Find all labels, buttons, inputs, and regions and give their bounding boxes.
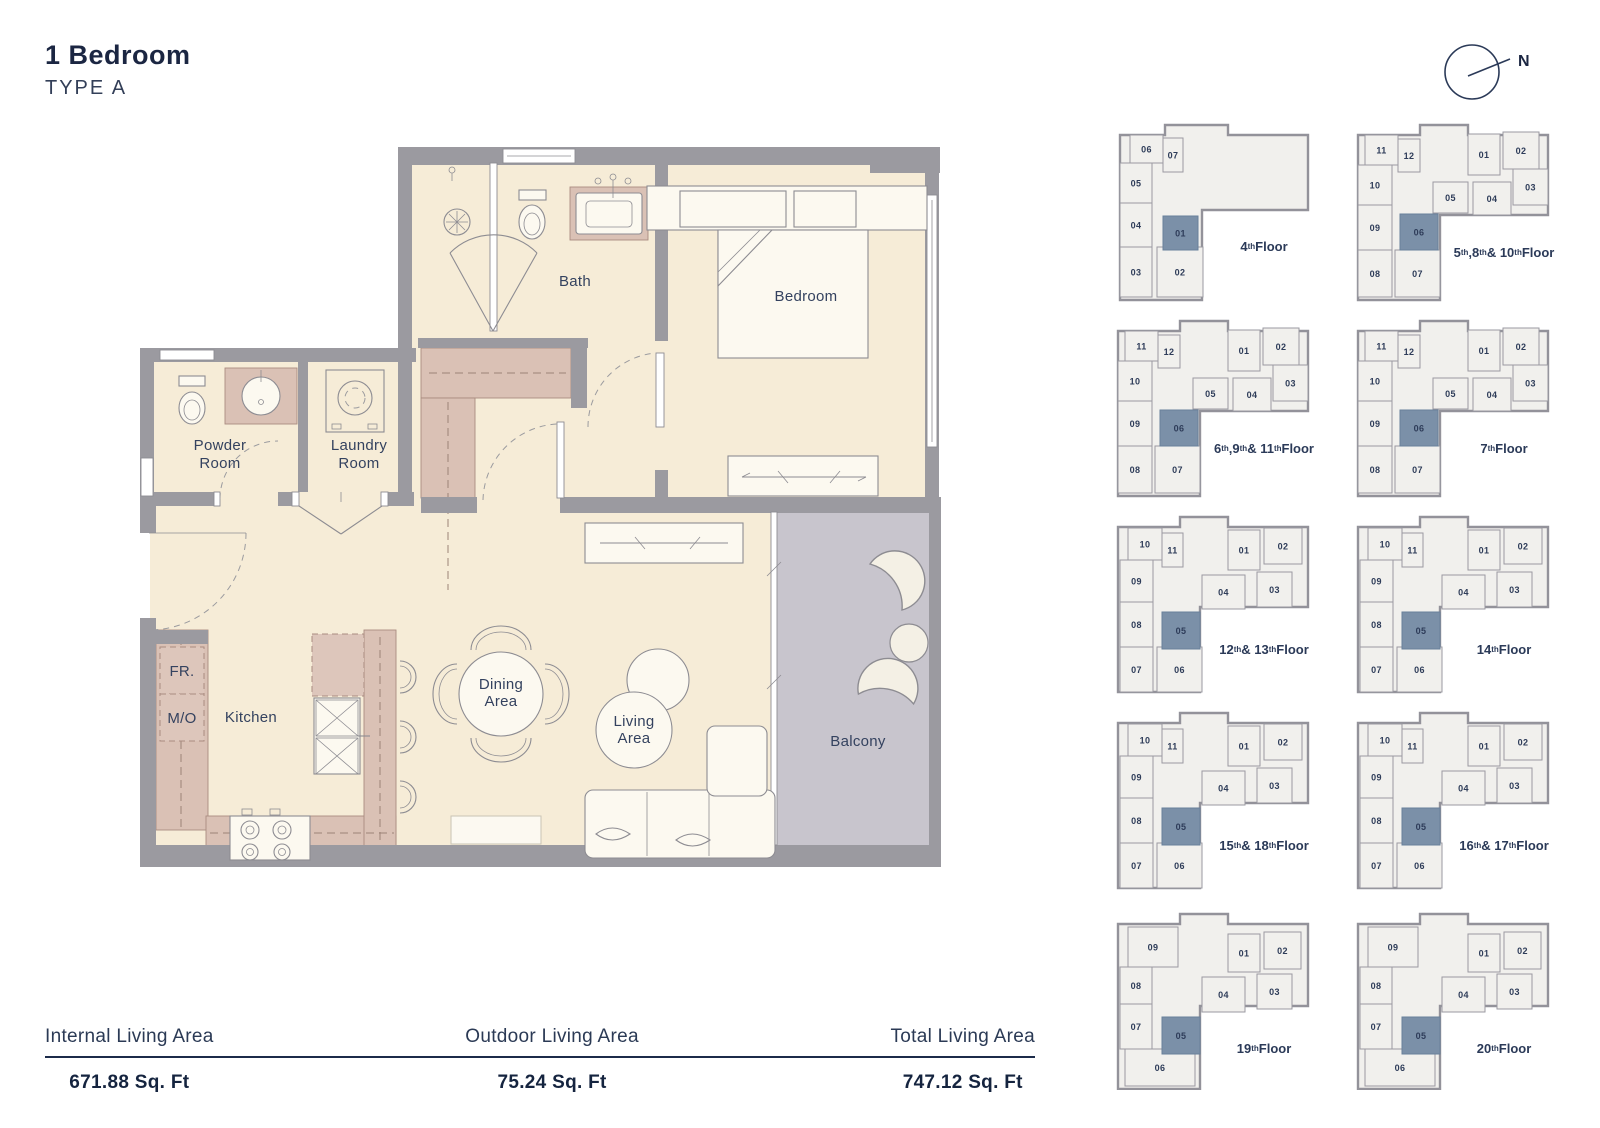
unit-number: 06 <box>1414 228 1425 238</box>
unit-number: 02 <box>1518 738 1529 748</box>
unit-number: 06 <box>1414 665 1425 675</box>
unit-number: 02 <box>1276 342 1287 352</box>
unit-number: 07 <box>1371 1022 1382 1032</box>
sofa-icon <box>585 790 775 858</box>
unit-number: 07 <box>1412 269 1423 279</box>
room-label-bedroom: Bedroom <box>775 288 838 305</box>
stat-label: Internal Living Area <box>45 1026 214 1048</box>
unit-number: 02 <box>1516 342 1527 352</box>
unit-number: 06 <box>1174 861 1185 871</box>
north-compass-icon: N <box>1438 28 1568 123</box>
unit-number: 01 <box>1239 346 1250 356</box>
unit-number: 11 <box>1407 546 1417 556</box>
powder-basin-icon <box>242 377 280 415</box>
unit-number: 05 <box>1176 822 1187 832</box>
unit-number: 02 <box>1278 542 1289 552</box>
unit-number: 03 <box>1285 379 1296 389</box>
unit-number: 09 <box>1148 943 1159 953</box>
unit-number: 10 <box>1140 540 1151 550</box>
unit-number: 03 <box>1509 585 1520 595</box>
unit-number: 02 <box>1175 268 1186 278</box>
unit-number: 03 <box>1269 781 1280 791</box>
unit-number: 09 <box>1131 577 1142 587</box>
unit-number: 08 <box>1371 816 1382 826</box>
unit-number: 03 <box>1509 781 1520 791</box>
unit-number: 09 <box>1130 419 1141 429</box>
unit-number: 02 <box>1516 146 1527 156</box>
unit-number: 09 <box>1388 943 1399 953</box>
unit-number: 11 <box>1376 146 1386 156</box>
keyplan-map: 111210090807060504010203 <box>1080 306 1320 502</box>
unit-number: 08 <box>1371 620 1382 630</box>
keyplan-grid: 060705040302014th Floor11121009080706050… <box>1080 110 1560 1090</box>
unit-number: 06 <box>1174 665 1185 675</box>
svg-text:Room: Room <box>199 455 240 472</box>
unit-number: 10 <box>1380 540 1391 550</box>
unit-number: 05 <box>1176 626 1187 636</box>
floorplan: Bath Bedroom Powder Room Laundry Room Ki… <box>130 140 950 885</box>
room-label-laundry: Laundry <box>331 437 388 454</box>
keyplan-9: 09080706050403010219th Floor <box>1080 894 1320 1090</box>
keyplan-floor-label: 14th Floor <box>1446 628 1562 672</box>
unit-number: 08 <box>1370 269 1381 279</box>
unit-number: 04 <box>1131 221 1142 231</box>
svg-text:Area: Area <box>485 693 518 710</box>
stat-value: 747.12 Sq. Ft <box>903 1072 1023 1094</box>
unit-number: 06 <box>1141 145 1152 155</box>
keyplan-5: 101109080706050403010212th & 13th Floor <box>1080 502 1320 698</box>
rug <box>451 816 541 844</box>
unit-number: 08 <box>1131 620 1142 630</box>
unit-number: 04 <box>1218 588 1229 598</box>
unit-number: 10 <box>1140 736 1151 746</box>
room-label-balcony: Balcony <box>830 733 886 750</box>
keyplan-map: 111210090807060504010203 <box>1320 110 1560 306</box>
room-label-living: Living <box>614 713 655 730</box>
unit-number: 06 <box>1414 861 1425 871</box>
unit-number: 03 <box>1131 268 1142 278</box>
unit-number: 01 <box>1239 546 1250 556</box>
unit-number: 05 <box>1445 389 1456 399</box>
stats-divider <box>45 1056 1035 1058</box>
unit-number: 01 <box>1479 150 1490 160</box>
balcony-table-icon <box>890 624 928 662</box>
unit-number: 08 <box>1130 465 1141 475</box>
unit-number: 09 <box>1131 773 1142 783</box>
unit-number: 05 <box>1131 179 1142 189</box>
unit-number: 11 <box>1167 546 1177 556</box>
keyplan-4: 1112100908070605040102037th Floor <box>1320 306 1560 502</box>
unit-number: 04 <box>1218 990 1229 1000</box>
unit-number: 09 <box>1370 419 1381 429</box>
unit-number: 10 <box>1370 181 1381 191</box>
unit-number: 03 <box>1509 987 1520 997</box>
unit-number: 08 <box>1371 981 1382 991</box>
unit-number: 04 <box>1487 194 1498 204</box>
keyplan-7: 101109080706050403010215th & 18th Floor <box>1080 698 1320 894</box>
room-label-powder: Powder <box>194 437 247 454</box>
room-label-bath: Bath <box>559 273 591 290</box>
keyplan-map: 111210090807060504010203 <box>1320 306 1560 502</box>
stat-total: Total Living Area 747.12 Sq. Ft <box>890 1026 1035 1094</box>
area-stats: Internal Living Area 671.88 Sq. Ft Outdo… <box>45 1026 1035 1094</box>
keyplan-floor-label: 4th Floor <box>1206 225 1322 269</box>
room-label-kitchen: Kitchen <box>225 709 277 726</box>
svg-text:Area: Area <box>618 730 651 747</box>
unit-number: 06 <box>1414 424 1425 434</box>
unit-number: 08 <box>1370 465 1381 475</box>
bath-door <box>656 353 664 427</box>
unit-number: 11 <box>1136 342 1146 352</box>
unit-number: 02 <box>1518 542 1529 552</box>
unit-number: 12 <box>1404 347 1415 357</box>
room-label-fr: FR. <box>169 663 194 680</box>
unit-number: 01 <box>1239 742 1250 752</box>
keyplan-map: 06070504030201 <box>1080 110 1320 306</box>
unit-number: 04 <box>1458 784 1469 794</box>
unit-number: 12 <box>1404 151 1415 161</box>
page-title: 1 Bedroom <box>45 40 191 71</box>
unit-number: 05 <box>1416 1031 1427 1041</box>
stat-label: Outdoor Living Area <box>465 1026 639 1048</box>
toilet-icon <box>519 190 546 200</box>
unit-number: 03 <box>1269 987 1280 997</box>
stat-outdoor: Outdoor Living Area 75.24 Sq. Ft <box>465 1026 639 1094</box>
chaise <box>707 726 767 796</box>
bedroom-door <box>557 422 564 498</box>
svg-text:Room: Room <box>338 455 379 472</box>
compass-north-label: N <box>1518 53 1530 70</box>
unit-number: 01 <box>1479 546 1490 556</box>
unit-number: 07 <box>1131 861 1142 871</box>
keyplan-1: 060705040302014th Floor <box>1080 110 1320 306</box>
unit-number: 11 <box>1407 742 1417 752</box>
unit-number: 07 <box>1131 665 1142 675</box>
unit-number: 04 <box>1458 990 1469 1000</box>
unit-number: 07 <box>1168 151 1179 161</box>
unit-number: 01 <box>1479 742 1490 752</box>
unit-number: 09 <box>1370 223 1381 233</box>
unit-number: 07 <box>1131 1022 1142 1032</box>
room-label-dining: Dining <box>479 676 523 693</box>
unit-number: 04 <box>1218 784 1229 794</box>
unit-number: 03 <box>1269 585 1280 595</box>
unit-number: 09 <box>1371 577 1382 587</box>
stat-value: 75.24 Sq. Ft <box>497 1072 606 1094</box>
unit-number: 04 <box>1458 588 1469 598</box>
unit-number: 01 <box>1479 346 1490 356</box>
keyplan-floor-label: 12th & 13th Floor <box>1206 628 1322 672</box>
keyplan-floor-label: 7th Floor <box>1446 427 1562 471</box>
unit-number: 02 <box>1277 946 1288 956</box>
unit-number: 04 <box>1247 390 1258 400</box>
unit-number: 11 <box>1167 742 1177 752</box>
keyplan-floor-label: 6th ,9th & 11th Floor <box>1206 427 1322 471</box>
wardrobe-icon <box>728 456 878 496</box>
unit-number: 11 <box>1376 342 1386 352</box>
unit-number: 10 <box>1130 377 1141 387</box>
keyplan-3: 1112100908070605040102036th ,9th & 11th … <box>1080 306 1320 502</box>
unit-number: 08 <box>1131 981 1142 991</box>
stat-internal: Internal Living Area 671.88 Sq. Ft <box>45 1026 214 1094</box>
keyplan-floor-label: 5th ,8th & 10th Floor <box>1446 231 1562 275</box>
keyplan-6: 101109080706050403010214th Floor <box>1320 502 1560 698</box>
unit-number: 07 <box>1412 465 1423 475</box>
unit-number: 07 <box>1172 465 1183 475</box>
unit-number: 01 <box>1239 949 1250 959</box>
shower-glass <box>490 163 497 331</box>
keyplan-2: 1112100908070605040102035th ,8th & 10th … <box>1320 110 1560 306</box>
unit-number: 02 <box>1278 738 1289 748</box>
unit-number: 01 <box>1175 229 1186 239</box>
unit-number: 04 <box>1487 390 1498 400</box>
compass-circle <box>1445 45 1499 99</box>
room-label-mo: M/O <box>167 710 196 727</box>
unit-number: 10 <box>1370 377 1381 387</box>
unit-number: 09 <box>1371 773 1382 783</box>
unit-number: 05 <box>1445 193 1456 203</box>
keyplan-10: 09080706050403010220th Floor <box>1320 894 1560 1090</box>
keyplan-8: 101109080706050403010216th & 17th Floor <box>1320 698 1560 894</box>
stat-label: Total Living Area <box>890 1026 1035 1048</box>
powder-toilet-icon <box>179 376 205 386</box>
unit-number: 06 <box>1155 1063 1166 1073</box>
unit-number: 05 <box>1176 1031 1187 1041</box>
unit-number: 03 <box>1525 379 1536 389</box>
unit-number: 05 <box>1416 822 1427 832</box>
unit-number: 10 <box>1380 736 1391 746</box>
keyplan-floor-label: 15th & 18th Floor <box>1206 824 1322 868</box>
unit-number: 07 <box>1371 665 1382 675</box>
unit-number: 06 <box>1174 424 1185 434</box>
page-subtitle: TYPE A <box>45 77 191 100</box>
unit-number: 07 <box>1371 861 1382 871</box>
keyplan-floor-label: 19th Floor <box>1206 1027 1322 1071</box>
unit-number: 08 <box>1131 816 1142 826</box>
stat-value: 671.88 Sq. Ft <box>69 1072 189 1094</box>
unit-number: 06 <box>1395 1063 1406 1073</box>
unit-number: 01 <box>1479 949 1490 959</box>
unit-number: 03 <box>1525 183 1536 193</box>
title-block: 1 Bedroom TYPE A <box>45 40 191 100</box>
unit-number: 12 <box>1164 347 1175 357</box>
keyplan-floor-label: 20th Floor <box>1446 1027 1562 1071</box>
unit-number: 02 <box>1517 946 1528 956</box>
keyplan-floor-label: 16th & 17th Floor <box>1446 824 1562 868</box>
unit-number: 05 <box>1416 626 1427 636</box>
unit-number: 05 <box>1205 389 1216 399</box>
compass-needle <box>1468 59 1510 76</box>
